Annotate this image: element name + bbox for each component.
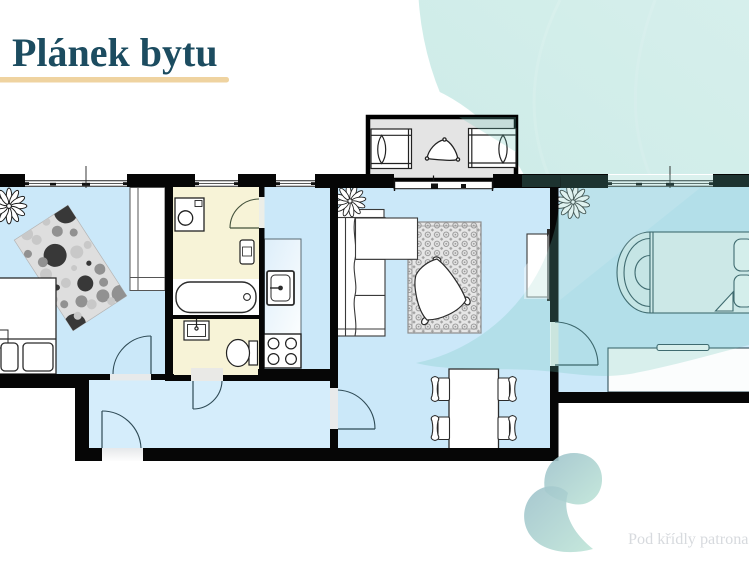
svg-text:Pod křídly patrona nešk: Pod křídly patrona nešk xyxy=(628,530,749,548)
svg-text:Plánek bytu: Plánek bytu xyxy=(12,30,218,75)
